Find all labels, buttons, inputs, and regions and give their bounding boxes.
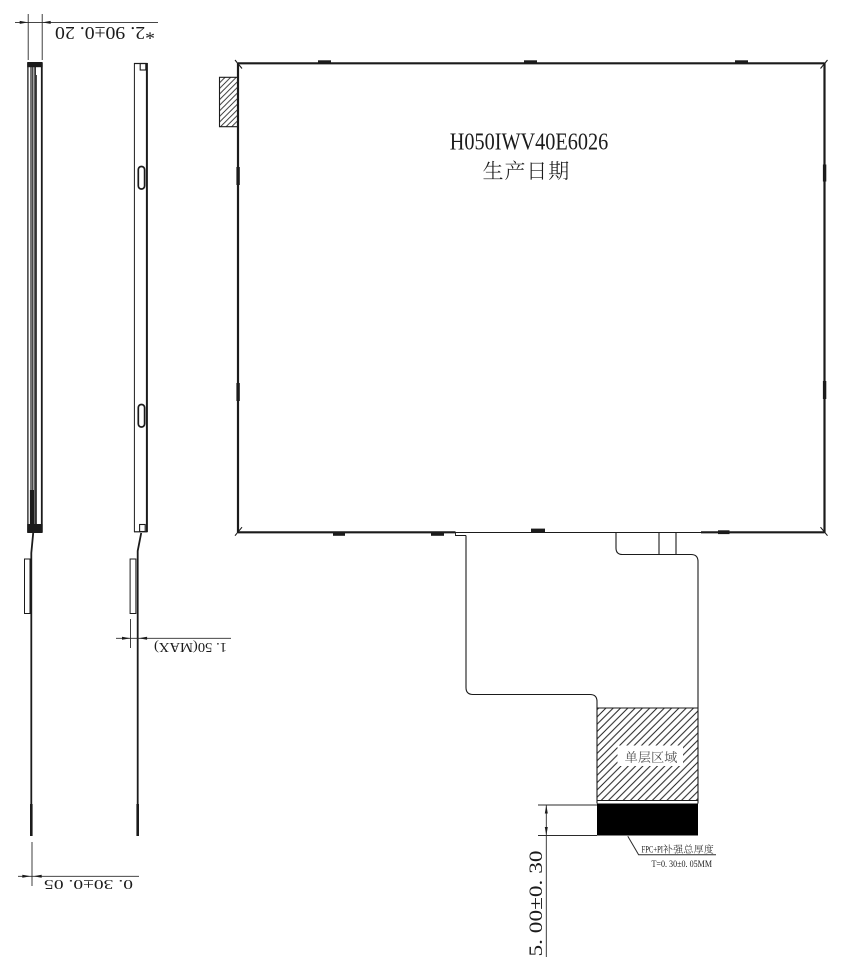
svg-text:0. 30±0. 05: 0. 30±0. 05 [44, 876, 133, 891]
svg-text:1. 50(MAX): 1. 50(MAX) [154, 639, 227, 654]
svg-text:5. 00±0. 30: 5. 00±0. 30 [526, 851, 547, 957]
svg-text:H050IWV40E6026: H050IWV40E6026 [450, 130, 609, 156]
svg-text:T=0. 30±0. 05MM: T=0. 30±0. 05MM [652, 860, 713, 870]
svg-text:*2. 90±0. 20: *2. 90±0. 20 [55, 23, 155, 43]
svg-text:FPC+PI: FPC+PI [642, 845, 664, 855]
